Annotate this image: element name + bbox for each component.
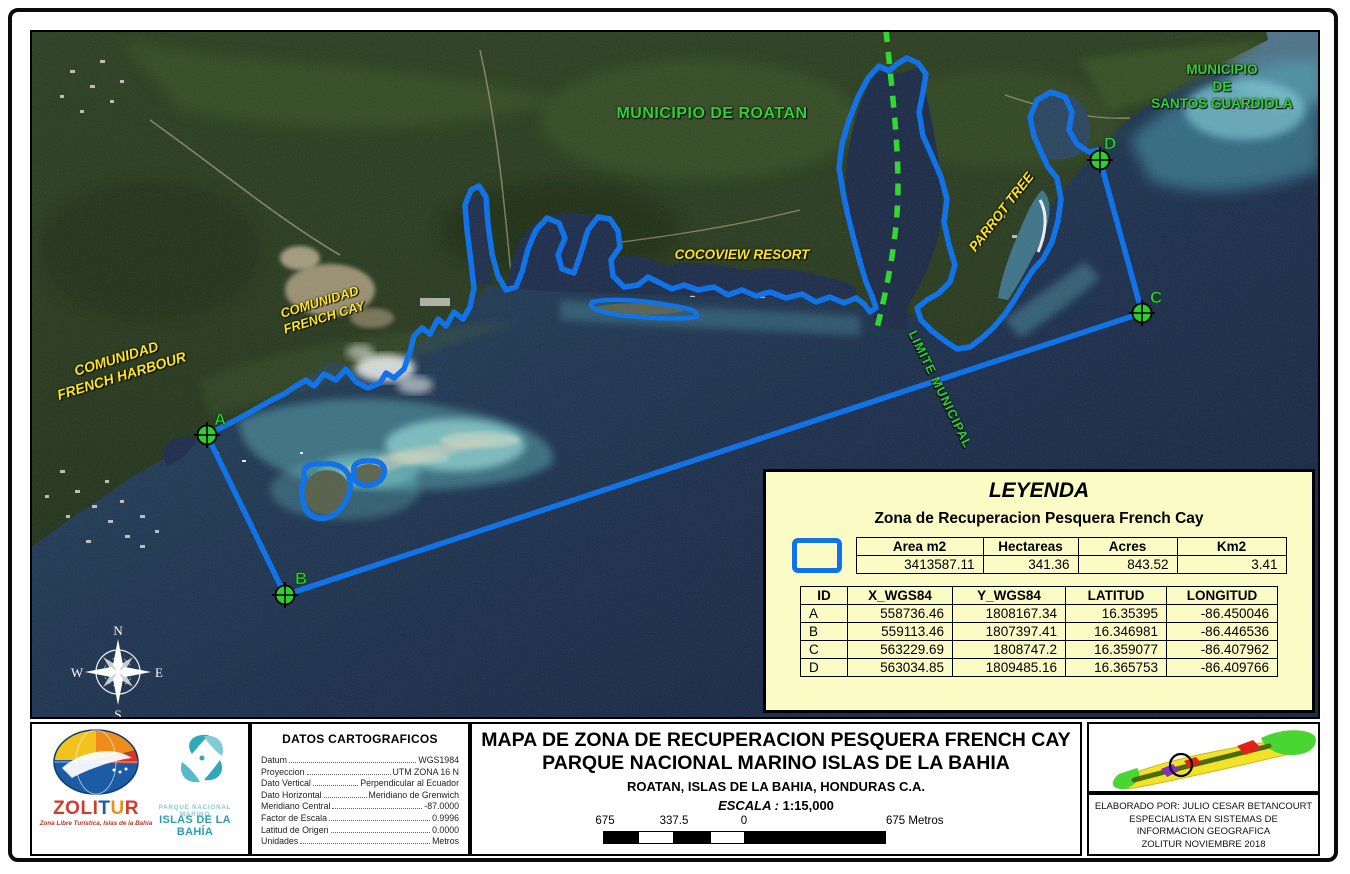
legend-subtitle: Zona de Recuperacion Pesquera French Cay bbox=[766, 510, 1312, 528]
coord-cell: B bbox=[801, 623, 848, 641]
area-header: Hectareas bbox=[983, 538, 1078, 556]
coord-header: X_WGS84 bbox=[848, 587, 953, 605]
datos-row: Dato HorizontalMeridiano de Grenwich bbox=[261, 790, 459, 802]
datos-row: Meridiano Central-87.0000 bbox=[261, 801, 459, 813]
scale-tick: 675 Metros bbox=[886, 815, 944, 827]
compass-w: W bbox=[71, 665, 84, 680]
marker-c-label: C bbox=[1150, 288, 1162, 307]
coord-cell: A bbox=[801, 605, 848, 623]
coord-cell: 1809485.16 bbox=[953, 659, 1066, 677]
zolitur-logo-wordmark: ZOLITUR bbox=[38, 798, 154, 820]
coord-row: D 563034.85 1809485.16 16.365753 -86.409… bbox=[801, 659, 1278, 677]
coord-cell: 1808747.2 bbox=[953, 641, 1066, 659]
coord-cell: -86.446536 bbox=[1167, 623, 1278, 641]
area-table: Area m2 Hectareas Acres Km2 3413587.11 3… bbox=[856, 537, 1287, 574]
marker-b-label: B bbox=[295, 569, 307, 588]
scale-tick: 337.5 bbox=[654, 815, 694, 827]
coordinates-table: ID X_WGS84 Y_WGS84 LATITUD LONGITUD A 55… bbox=[800, 586, 1278, 677]
credits-line: INFORMACION GEOGRAFICA bbox=[1089, 826, 1318, 839]
credits-line: ZOLITUR NOVIEMBRE 2018 bbox=[1089, 839, 1318, 852]
marker-a-label: A bbox=[214, 410, 226, 429]
coord-cell: 16.365753 bbox=[1066, 659, 1167, 677]
compass-n: N bbox=[113, 623, 123, 638]
label-municipio-roatan: MUNICIPIO DE ROATAN bbox=[587, 104, 837, 124]
coord-header: LATITUD bbox=[1066, 587, 1167, 605]
coord-cell: D bbox=[801, 659, 848, 677]
pnmib-logo-icon bbox=[154, 730, 244, 800]
area-header: Km2 bbox=[1177, 538, 1286, 556]
datos-row: Dato VerticalPerpendicular al Ecuador bbox=[261, 778, 459, 790]
coord-cell: -86.409766 bbox=[1167, 659, 1278, 677]
credits-line: ESPECIALISTA EN SISTEMAS DE bbox=[1089, 814, 1318, 827]
cartographic-data-rows: DatumWGS1984 ProyeccionUTM ZONA 16 N Dat… bbox=[261, 755, 459, 848]
datos-row: Latitud de Origen0.0000 bbox=[261, 825, 459, 837]
coord-row: C 563229.69 1808747.2 16.359077 -86.4079… bbox=[801, 641, 1278, 659]
coord-row: B 559113.46 1807397.41 16.346981 -86.446… bbox=[801, 623, 1278, 641]
cartographic-data-title: DATOS CARTOGRAFICOS bbox=[252, 732, 468, 746]
scale-text: ESCALA : 1:15,000 bbox=[472, 798, 1080, 813]
datos-row: Factor de Escala0.9996 bbox=[261, 813, 459, 825]
cartographic-data-box: DATOS CARTOGRAFICOS DatumWGS1984 Proyecc… bbox=[250, 722, 470, 856]
datos-row: ProyeccionUTM ZONA 16 N bbox=[261, 767, 459, 779]
map-title-line2: PARQUE NACIONAL MARINO ISLAS DE LA BAHIA bbox=[472, 752, 1080, 775]
roatan-locator-map bbox=[1089, 724, 1318, 791]
label-cocoview-resort: COCOVIEW RESORT bbox=[652, 247, 832, 264]
compass-e: E bbox=[155, 665, 163, 680]
coord-cell: 16.35395 bbox=[1066, 605, 1167, 623]
area-header: Acres bbox=[1078, 538, 1177, 556]
map-subtitle: ROATAN, ISLAS DE LA BAHIA, HONDURAS C.A. bbox=[472, 779, 1080, 794]
map-title-box: MAPA DE ZONA DE RECUPERACION PESQUERA FR… bbox=[470, 722, 1082, 856]
coord-cell: 563229.69 bbox=[848, 641, 953, 659]
page: { "map": { "labels": { "municipio_roatan… bbox=[0, 0, 1350, 874]
coord-header: Y_WGS84 bbox=[953, 587, 1066, 605]
coord-header: LONGITUD bbox=[1167, 587, 1278, 605]
area-cell: 3.41 bbox=[1177, 556, 1286, 574]
coord-cell: 563034.85 bbox=[848, 659, 953, 677]
coord-cell: 16.359077 bbox=[1066, 641, 1167, 659]
coord-cell: 559113.46 bbox=[848, 623, 953, 641]
coord-cell: 1808167.34 bbox=[953, 605, 1066, 623]
area-cell: 3413587.11 bbox=[856, 556, 983, 574]
pnmib-logo-line2: ISLAS DE LA BAHÍA bbox=[140, 814, 250, 838]
legend-box: LEYENDA Zona de Recuperacion Pesquera Fr… bbox=[763, 469, 1315, 713]
compass-s: S bbox=[114, 707, 121, 717]
coord-header: ID bbox=[801, 587, 848, 605]
locator-map-box bbox=[1087, 722, 1320, 793]
area-cell: 341.36 bbox=[983, 556, 1078, 574]
datos-row: UnidadesMetros bbox=[261, 836, 459, 848]
credits-box: ELABORADO POR: JULIO CESAR BETANCOURT ES… bbox=[1087, 793, 1320, 856]
coord-cell: 16.346981 bbox=[1066, 623, 1167, 641]
coord-cell: 1807397.41 bbox=[953, 623, 1066, 641]
area-cell: 843.52 bbox=[1078, 556, 1177, 574]
scale-tick: 0 bbox=[734, 815, 754, 827]
coord-cell: -86.450046 bbox=[1167, 605, 1278, 623]
marker-d-label: D bbox=[1104, 134, 1116, 153]
zone-boundary-swatch bbox=[792, 538, 842, 573]
label-municipio-santos-guardiola: MUNICIPIO DE SANTOS GUARDIOLA bbox=[1132, 62, 1312, 113]
map-title-line1: MAPA DE ZONA DE RECUPERACION PESQUERA FR… bbox=[472, 729, 1080, 752]
legend-title: LEYENDA bbox=[766, 479, 1312, 503]
coord-cell: -86.407962 bbox=[1167, 641, 1278, 659]
area-header: Area m2 bbox=[856, 538, 983, 556]
logos-box: ZOLITUR Zona Libre Turística, Islas de l… bbox=[30, 722, 250, 856]
credits-line: ELABORADO POR: JULIO CESAR BETANCOURT bbox=[1089, 801, 1318, 814]
coord-cell: C bbox=[801, 641, 848, 659]
scale-tick: 675 bbox=[590, 815, 620, 827]
datos-row: DatumWGS1984 bbox=[261, 755, 459, 767]
scale-bar: 675 337.5 0 675 Metros bbox=[472, 815, 1080, 849]
scale-bar-segments bbox=[603, 831, 886, 844]
area-row: 3413587.11 341.36 843.52 3.41 bbox=[856, 556, 1286, 574]
coord-cell: 558736.46 bbox=[848, 605, 953, 623]
coord-row: A 558736.46 1808167.34 16.35395 -86.4500… bbox=[801, 605, 1278, 623]
